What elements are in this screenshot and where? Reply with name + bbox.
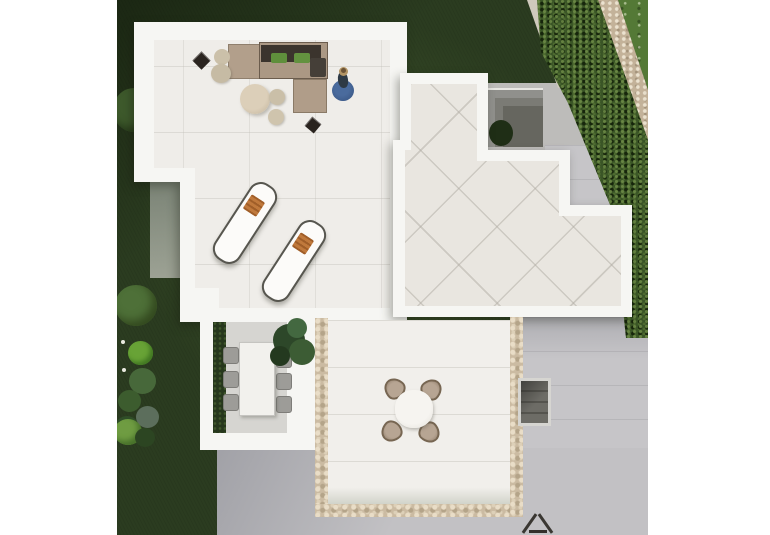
sofa-pillow-green	[294, 53, 310, 63]
sofa-pillow-green	[271, 53, 287, 63]
lounger-towel	[243, 194, 266, 217]
dark-object-bar	[529, 530, 547, 533]
render-canvas	[0, 0, 770, 535]
pouf	[211, 64, 231, 83]
person-on-rug	[327, 58, 363, 104]
outdoor-sofa	[259, 42, 328, 79]
scene-content	[117, 0, 648, 535]
patio	[117, 0, 648, 535]
stairwell	[518, 378, 551, 426]
coffee-table-round	[240, 84, 270, 114]
patio-mosaic-bottom	[315, 504, 523, 517]
patio-mosaic-left	[315, 318, 328, 517]
sofa-corner-cushion	[310, 58, 326, 77]
side-table-round-small	[269, 89, 285, 105]
sofa-end-module	[293, 79, 327, 113]
sofa-chaise	[228, 44, 261, 79]
pouf	[214, 49, 230, 65]
dark-object	[522, 512, 556, 535]
patio-table	[395, 390, 433, 428]
lounger-towel	[292, 232, 315, 255]
person-hair	[341, 68, 346, 73]
pouf	[268, 109, 284, 125]
